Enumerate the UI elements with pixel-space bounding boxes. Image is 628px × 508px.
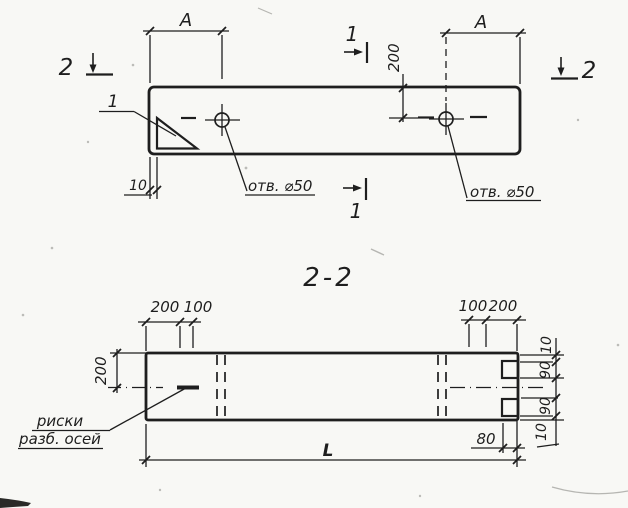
dim-edge-10-label: 10 [129, 178, 147, 194]
dim-a-left-label: A [179, 10, 192, 31]
scan-smudge [0, 498, 31, 508]
end-groove-top [502, 361, 518, 378]
speck [617, 344, 620, 347]
section-view: 2-2 риски разб. осей [18, 263, 564, 467]
dim-90-top-label: 90 [538, 361, 554, 379]
section-marker-1-bottom: 1 [343, 178, 366, 223]
detail-callout-label: 1 [108, 92, 119, 112]
leader-line [448, 126, 467, 198]
section-arrow-head [90, 65, 97, 74]
speck [22, 314, 25, 317]
axis-note-line2: разб. осей [18, 430, 101, 448]
dim-10-bottom-label: 10 [534, 423, 550, 441]
speck [419, 495, 421, 497]
section-arrow-head [558, 68, 565, 77]
beam-outline-plan [149, 87, 520, 154]
dim-length-L: L [139, 421, 526, 467]
drawing-sheet: 1 A [0, 0, 628, 508]
dim-80-label: 80 [476, 430, 495, 448]
section-arrow-head [354, 49, 363, 56]
speck [87, 141, 89, 143]
dim-90-bottom-label: 90 [538, 397, 554, 415]
speck [159, 489, 161, 491]
dim-length-label: L [323, 441, 334, 461]
dim-left-200: 200 [92, 349, 146, 393]
section-title: 2-2 [303, 263, 354, 293]
leader-line [110, 388, 186, 430]
section-1-label: 1 [346, 22, 359, 46]
dim-offset-200-label: 200 [385, 43, 403, 72]
hole-left-label-text: отв. ⌀50 [248, 177, 312, 195]
end-groove-bottom [502, 399, 518, 416]
section-marker-2-left: 2 [59, 53, 113, 81]
section-1-label: 1 [350, 199, 363, 223]
hole-right [418, 103, 487, 135]
axis-note: риски разб. осей [18, 388, 186, 449]
hole-left [181, 104, 240, 136]
corner-chamfer-detail [157, 118, 197, 149]
dim-200-label: 200 [151, 298, 180, 316]
speck [577, 119, 579, 121]
section-marker-1-top: 1 [344, 22, 367, 63]
detail-callout-leader [134, 112, 176, 137]
section-arrow-head [353, 185, 362, 192]
dim-100-label: 100 [184, 298, 213, 316]
dim-200-label: 200 [489, 297, 518, 315]
leader-line [225, 127, 247, 191]
scan-stroke [258, 8, 272, 14]
hole-right-label-text: отв. ⌀50 [470, 183, 534, 201]
dim-a-right-label: A [474, 12, 487, 33]
dim-edge-10: 10 [124, 157, 161, 199]
speck [245, 167, 248, 170]
hole-label-left: отв. ⌀50 [225, 127, 315, 195]
dim-top-left: 200 100 [138, 298, 212, 351]
dim-100-label: 100 [459, 297, 488, 315]
dim-top-right: 100 200 [459, 297, 526, 351]
speck [132, 64, 135, 67]
scan-stroke [552, 487, 628, 494]
hole-label-right: отв. ⌀50 [448, 126, 541, 201]
technical-drawing: 1 A [0, 0, 628, 508]
scan-stroke [371, 249, 384, 255]
plan-view: 1 A [59, 10, 597, 223]
dim-right-chain: 10 90 90 10 [520, 336, 564, 447]
speck [51, 247, 54, 250]
beam-outline-section [146, 353, 518, 420]
section-2-label: 2 [582, 58, 597, 84]
dim-offset-200: 200 [385, 43, 418, 122]
dim-10-top-label: 10 [539, 336, 555, 354]
axis-note-line1: риски [36, 412, 84, 430]
dim-a-left: A [143, 10, 229, 83]
section-2-label: 2 [59, 55, 74, 81]
dim-left-200-label: 200 [92, 356, 110, 385]
section-marker-2-right: 2 [551, 57, 596, 84]
